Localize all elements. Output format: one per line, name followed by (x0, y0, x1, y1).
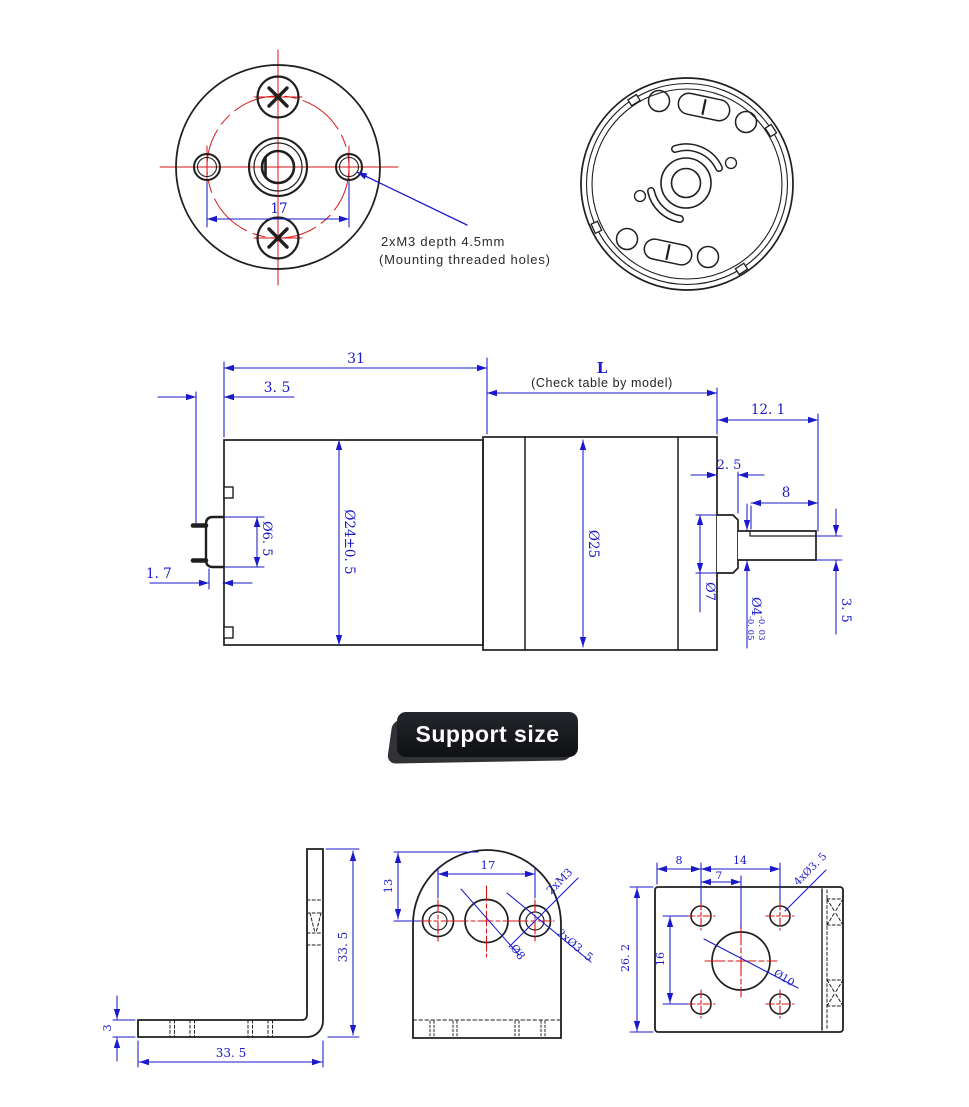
dim-shaft-dia-tol-lower: -0. 05 (745, 616, 755, 641)
dim-bracket-hole-spacing: 17 (481, 858, 496, 872)
motor-back-view (581, 78, 793, 290)
dim-shaft-dia: Ø4 (748, 597, 763, 616)
dim-gear-length: L (597, 359, 608, 377)
dim-plate-hole-spacing-y: 16 (654, 952, 667, 966)
dim-boss-dia: Ø7 (702, 582, 717, 601)
motor-side-view: 31 3. 5 L (Check table by model) 12. 1 2… (146, 351, 853, 650)
rear-end-cap (206, 517, 223, 567)
dim-rear-offset: 3. 5 (264, 380, 291, 396)
dim-boss-width: 2. 5 (717, 458, 742, 473)
leader-plate-holes: 4xØ3. 5 (792, 850, 830, 888)
dim-shaft-total: 12. 1 (751, 402, 785, 418)
dim-motor-length: 31 (347, 351, 365, 367)
bracket-side-view: 33. 5 33. 5 3 (100, 849, 359, 1067)
motor-shell-outline (581, 78, 793, 290)
dim-shaft-dia-tol-upper: -0. 03 (756, 616, 766, 641)
leader-plate-center-hole: Ø10 (771, 967, 796, 989)
dim-shaft-dia-group: Ø4 -0. 03 -0. 05 (745, 597, 766, 641)
bracket-plate (655, 887, 843, 1032)
dim-plate-edge-offset: 8 (676, 854, 683, 867)
leader-arrow (357, 172, 467, 225)
technical-drawing: 17 2xM3 depth 4.5mm (Mounting threaded h… (0, 0, 969, 1107)
motor-dimension-sheet: 17 2xM3 depth 4.5mm (Mounting threaded h… (0, 0, 969, 1107)
bracket-front-view: 17 13 2xM3 2xØ3. 5 Ø8 (381, 850, 596, 1038)
dim-plate-hole-spacing-x: 14 (733, 854, 747, 867)
dim-plate-width: 26. 2 (619, 944, 632, 972)
support-size-badge: Support size (397, 712, 578, 757)
dim-gearbox-dia: Ø25 (585, 530, 601, 558)
dim-motor-dia: Ø24±0. 5 (341, 509, 357, 574)
dim-bracket-top-offset: 13 (381, 879, 395, 894)
dim-shaft-flat: 3. 5 (838, 598, 853, 623)
dim-shaft-length: 8 (782, 485, 791, 501)
gearbox-face-view: 17 2xM3 depth 4.5mm (Mounting threaded h… (160, 50, 551, 285)
dim-bracket-thickness: 3 (100, 1024, 114, 1031)
dim-bracket-width: 33. 5 (216, 1046, 247, 1060)
bracket-profile (138, 849, 323, 1037)
dim-bracket-height: 33. 5 (336, 932, 350, 963)
dim-plate-center-offset: 7 (716, 870, 723, 882)
dim-rear-boss-dia: Ø6. 5 (259, 521, 274, 556)
shaft-boss (717, 515, 738, 573)
mounting-note-line2: (Mounting threaded holes) (379, 252, 551, 267)
dim-bolt-spacing: 17 (270, 201, 287, 217)
mounting-note-line1: 2xM3 depth 4.5mm (381, 234, 505, 249)
bracket-bottom-view: 8 14 7 16 26. 2 4xØ3. 5 Ø10 (619, 850, 843, 1032)
gear-length-note: (Check table by model) (531, 376, 673, 390)
bearing-hub (661, 158, 711, 208)
dim-terminal-offset: 1. 7 (146, 566, 172, 582)
